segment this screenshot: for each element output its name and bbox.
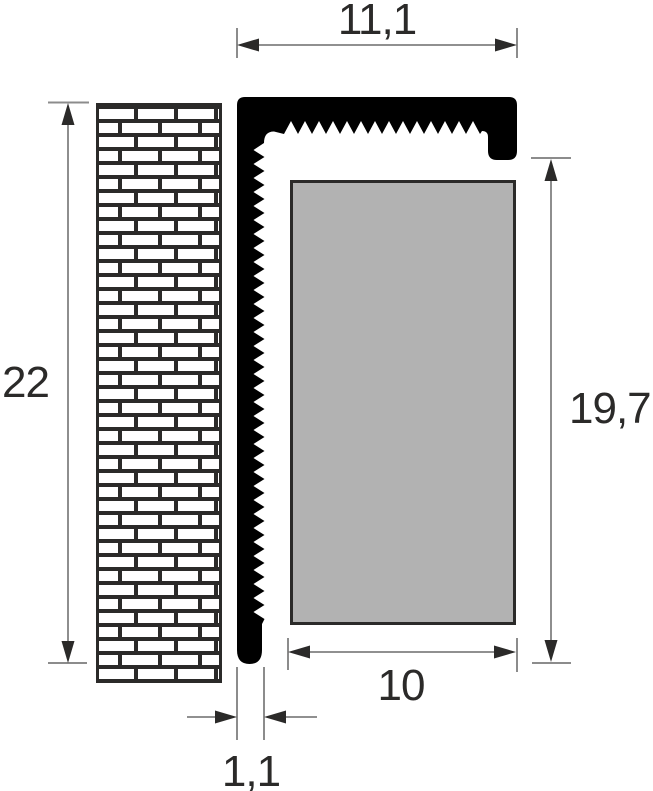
dim-bottom-width-label: 10	[378, 661, 425, 710]
profile-cross-section-drawing: 11,1 22 19,7 10 1,1	[0, 0, 653, 791]
dim-right-height-label: 19,7	[569, 384, 651, 433]
arrow-up-icon	[545, 159, 558, 181]
arrow-down-icon	[545, 640, 558, 662]
arrow-right-icon	[215, 711, 237, 724]
brick-wall-hatch	[96, 103, 222, 683]
dim-left-height-label: 22	[2, 358, 49, 407]
dim-profile-thickness: 1,1	[187, 667, 317, 791]
dim-top-width-label: 11,1	[338, 0, 416, 44]
arrow-right-icon	[495, 39, 517, 52]
dim-right-height: 19,7	[531, 158, 651, 663]
technical-drawing-canvas: 11,1 22 19,7 10 1,1	[0, 0, 653, 791]
arrow-left-icon	[264, 711, 286, 724]
arrow-down-icon	[62, 641, 75, 663]
arrow-left-icon	[237, 39, 259, 52]
dim-profile-thickness-label: 1,1	[222, 747, 280, 791]
dim-left-height: 22	[2, 103, 89, 664]
tile-panel	[292, 182, 515, 624]
dim-top-width: 11,1	[237, 0, 517, 58]
dim-bottom-width: 10	[288, 638, 517, 710]
arrow-left-icon	[288, 646, 310, 659]
arrow-right-icon	[494, 646, 516, 659]
arrow-up-icon	[62, 103, 75, 125]
